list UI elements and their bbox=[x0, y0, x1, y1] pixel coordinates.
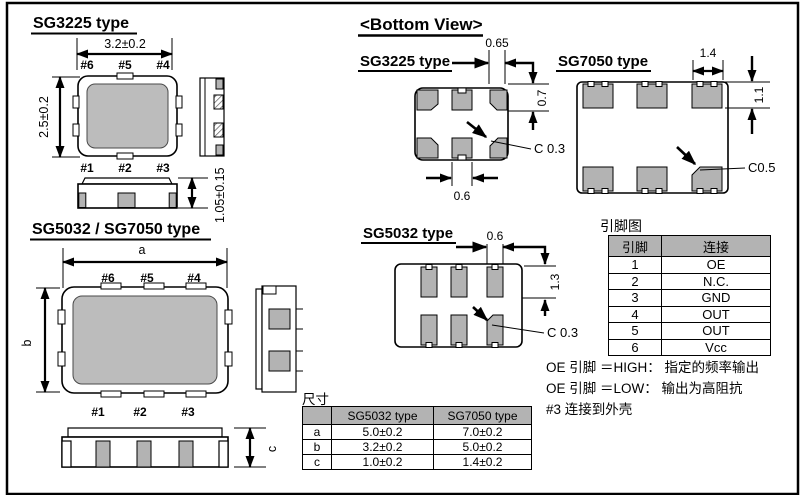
pad-6 bbox=[583, 84, 613, 108]
pin-label-3: #3 bbox=[156, 161, 170, 175]
profile-edge-pad bbox=[219, 441, 228, 467]
dim-extension-lines bbox=[52, 77, 80, 157]
sg3225-thickness-dim: 1.05±0.15 bbox=[213, 167, 227, 223]
size-table-header-row: SG5032 type SG7050 type bbox=[303, 407, 532, 425]
pad-width-dim: 1.4 bbox=[700, 46, 717, 60]
size-table: SG5032 type SG7050 type a 5.0±0.2 7.0±0.… bbox=[302, 406, 532, 470]
sg3225-metal-lid bbox=[87, 84, 168, 148]
pin-map-label: 引脚图 bbox=[600, 216, 642, 236]
castellation bbox=[101, 391, 121, 397]
sg5032-7050-profile-view: c bbox=[62, 428, 279, 467]
table-row: 1 OE bbox=[609, 257, 771, 274]
castellation bbox=[176, 96, 182, 108]
pin-number: 2 bbox=[609, 273, 662, 290]
castellation bbox=[144, 283, 164, 289]
pin-label-4: #4 bbox=[156, 58, 170, 72]
table-row: 3 GND bbox=[609, 290, 771, 307]
size-table-label: 尺寸 bbox=[302, 388, 329, 408]
pad-1 bbox=[421, 315, 437, 345]
sg5032-value: 5.0±0.2 bbox=[332, 425, 434, 440]
castellation bbox=[73, 96, 79, 108]
sg3225-package-section: SG3225 type 3.2±0.2 #6 #5 #4 2.5±0.2 #1 … bbox=[31, 15, 227, 223]
sg5032-chamfer-label: C 0.3 bbox=[547, 325, 578, 340]
castellation bbox=[225, 310, 232, 324]
sg7050-bottom-view: SG7050 type 1.4 1.1 C0.5 bbox=[556, 46, 775, 194]
pad-notch bbox=[458, 88, 466, 93]
sg5032-bottom-view: SG5032 type 0.6 1.3 C 0.3 bbox=[361, 225, 578, 348]
sg5032-value: 1.0±0.2 bbox=[332, 455, 434, 470]
castellation bbox=[117, 153, 133, 159]
castellation bbox=[186, 391, 206, 397]
sg3225-bottom-title: SG3225 type bbox=[360, 53, 450, 70]
lid-seam bbox=[256, 289, 262, 389]
pin-connection: GND bbox=[662, 290, 771, 307]
profile-edge-pad bbox=[62, 441, 71, 467]
pin-map-table: 引脚 连接 1 OE 2 N.C. 3 GND 4 OUT 5 OUT 6 Vc… bbox=[608, 235, 771, 356]
castellation bbox=[73, 124, 79, 136]
table-row: 2 N.C. bbox=[609, 273, 771, 290]
dim-extension-lines bbox=[36, 288, 60, 392]
pin-connection: N.C. bbox=[662, 273, 771, 290]
pad-height-dim: 0.7 bbox=[535, 89, 549, 106]
profile-pad bbox=[137, 441, 151, 467]
sg3225-width-dim: 3.2±0.2 bbox=[104, 37, 146, 51]
note-case-connection: #3 连接到外壳 bbox=[546, 399, 759, 420]
castellation bbox=[117, 73, 133, 79]
pad-notch bbox=[458, 155, 466, 160]
side-body bbox=[262, 286, 296, 392]
side-pad bbox=[269, 351, 290, 371]
dim-b-label: b bbox=[20, 339, 34, 346]
param-name: c bbox=[303, 455, 332, 470]
profile-pad bbox=[169, 193, 176, 208]
pin-label-6: #6 bbox=[80, 58, 94, 72]
dim-corner-arrow bbox=[505, 63, 533, 83]
pad-2 bbox=[451, 315, 467, 345]
pad-3-chamfered bbox=[692, 167, 722, 191]
side-pad bbox=[216, 79, 223, 89]
sg7050-value: 7.0±0.2 bbox=[434, 425, 532, 440]
pad-5 bbox=[451, 267, 467, 297]
profile-pad bbox=[79, 193, 86, 208]
corner-pad-width-dim: 0.65 bbox=[485, 36, 509, 50]
pin-connection: Vcc bbox=[662, 339, 771, 356]
side-body bbox=[200, 78, 224, 156]
sg5032-7050-side-view bbox=[256, 286, 303, 392]
pin-label-5: #5 bbox=[118, 58, 132, 72]
param-name: b bbox=[303, 440, 332, 455]
side-pad bbox=[269, 309, 290, 329]
castellation bbox=[101, 283, 121, 289]
castellation bbox=[144, 391, 164, 397]
dim-corner-arrow bbox=[503, 247, 545, 264]
note-oe-high: OE 引脚 ＝HIGH： 指定的频率输出 bbox=[546, 357, 759, 378]
table-row: 6 Vcc bbox=[609, 339, 771, 356]
sg3225-section-title: SG3225 type bbox=[33, 15, 129, 32]
table-row: 5 OUT bbox=[609, 323, 771, 340]
profile-lid bbox=[68, 428, 222, 437]
param-column-header bbox=[303, 407, 332, 425]
pin-label-2: #2 bbox=[118, 161, 132, 175]
sg3225-profile-view: 1.05±0.15 bbox=[78, 167, 227, 223]
pin-label-3: #3 bbox=[181, 405, 195, 419]
pad-4 bbox=[487, 267, 503, 297]
pad-1 bbox=[583, 167, 613, 191]
param-name: a bbox=[303, 425, 332, 440]
side-castellation bbox=[214, 123, 223, 137]
pad-5 bbox=[637, 84, 667, 108]
pad-4 bbox=[692, 84, 722, 108]
pad-height-dim: 1.1 bbox=[752, 86, 766, 103]
sg3225-chamfer-label: C 0.3 bbox=[534, 141, 565, 156]
castellation bbox=[225, 352, 232, 366]
castellation bbox=[58, 310, 65, 324]
profile-pad bbox=[96, 441, 110, 467]
castellation bbox=[186, 283, 206, 289]
pin-connection: OE bbox=[662, 257, 771, 274]
sg3225-side-view bbox=[200, 78, 224, 156]
pad-3-chamfered bbox=[487, 315, 503, 345]
note-oe-low: OE 引脚 ＝LOW： 输出为高阻抗 bbox=[546, 378, 759, 399]
sg7050-value: 1.4±0.2 bbox=[434, 455, 532, 470]
dim-extension-lines bbox=[489, 50, 505, 84]
pad-tick-lines bbox=[296, 309, 303, 371]
table-row: 4 OUT bbox=[609, 306, 771, 323]
datasheet-page: SG3225 type 3.2±0.2 #6 #5 #4 2.5±0.2 #1 … bbox=[0, 0, 803, 495]
sg5032-bottom-title: SG5032 type bbox=[363, 225, 453, 242]
pad-height-dim: 1.3 bbox=[548, 273, 562, 290]
side-pad bbox=[216, 145, 223, 155]
sg7050-chamfer-label: C0.5 bbox=[748, 160, 775, 175]
pin-number: 4 bbox=[609, 306, 662, 323]
dim-c-label: c bbox=[265, 446, 279, 452]
pad-6 bbox=[417, 90, 438, 110]
profile-pad bbox=[118, 193, 135, 208]
pin-number: 6 bbox=[609, 339, 662, 356]
dim-a-label: a bbox=[139, 243, 146, 257]
profile-pad bbox=[179, 441, 193, 467]
sg7050-bottom-title: SG7050 type bbox=[558, 53, 648, 70]
castellation bbox=[176, 124, 182, 136]
profile-lid bbox=[82, 178, 172, 184]
pad-width-dim: 0.6 bbox=[487, 229, 504, 243]
pin-label-1: #1 bbox=[80, 161, 94, 175]
sg5032-column-header: SG5032 type bbox=[332, 407, 434, 425]
pin-label-1: #1 bbox=[91, 405, 105, 419]
sg3225-bottom-view: SG3225 type 0.65 0.7 C 0.3 0.6 bbox=[358, 36, 565, 203]
sg5032-value: 3.2±0.2 bbox=[332, 440, 434, 455]
pad-6 bbox=[421, 267, 437, 297]
pin-number: 1 bbox=[609, 257, 662, 274]
center-pad-width-dim: 0.6 bbox=[454, 189, 471, 203]
sg5032-7050-metal-lid bbox=[73, 296, 217, 384]
table-row: c 1.0±0.2 1.4±0.2 bbox=[303, 455, 532, 470]
bottom-view-title: <Bottom View> bbox=[360, 15, 483, 34]
pin-number: 3 bbox=[609, 290, 662, 307]
pin-connection: OUT bbox=[662, 306, 771, 323]
pin-connection-inverted-out: OUT bbox=[662, 323, 771, 340]
sg3225-height-dim: 2.5±0.2 bbox=[37, 96, 51, 138]
pad-2 bbox=[637, 167, 667, 191]
table-row: a 5.0±0.2 7.0±0.2 bbox=[303, 425, 532, 440]
sg7050-value: 5.0±0.2 bbox=[434, 440, 532, 455]
pin-column-header: 引脚 bbox=[609, 236, 662, 257]
castellation bbox=[58, 352, 65, 366]
sg7050-column-header: SG7050 type bbox=[434, 407, 532, 425]
pin-number: 5 bbox=[609, 323, 662, 340]
sg5032-7050-section-title: SG5032 / SG7050 type bbox=[32, 221, 200, 238]
connection-column-header: 连接 bbox=[662, 236, 771, 257]
pin-label-2: #2 bbox=[133, 405, 147, 419]
oe-function-notes: OE 引脚 ＝HIGH： 指定的频率输出 OE 引脚 ＝LOW： 输出为高阻抗 … bbox=[546, 357, 759, 420]
lid-step bbox=[263, 286, 276, 294]
table-row: b 3.2±0.2 5.0±0.2 bbox=[303, 440, 532, 455]
side-castellation bbox=[214, 95, 223, 109]
pin-table-header-row: 引脚 连接 bbox=[609, 236, 771, 257]
sg5032-7050-package-section: SG5032 / SG7050 type a #6 #5 #4 b #1 #2 … bbox=[20, 221, 303, 467]
dim-extension-lines bbox=[452, 162, 472, 186]
